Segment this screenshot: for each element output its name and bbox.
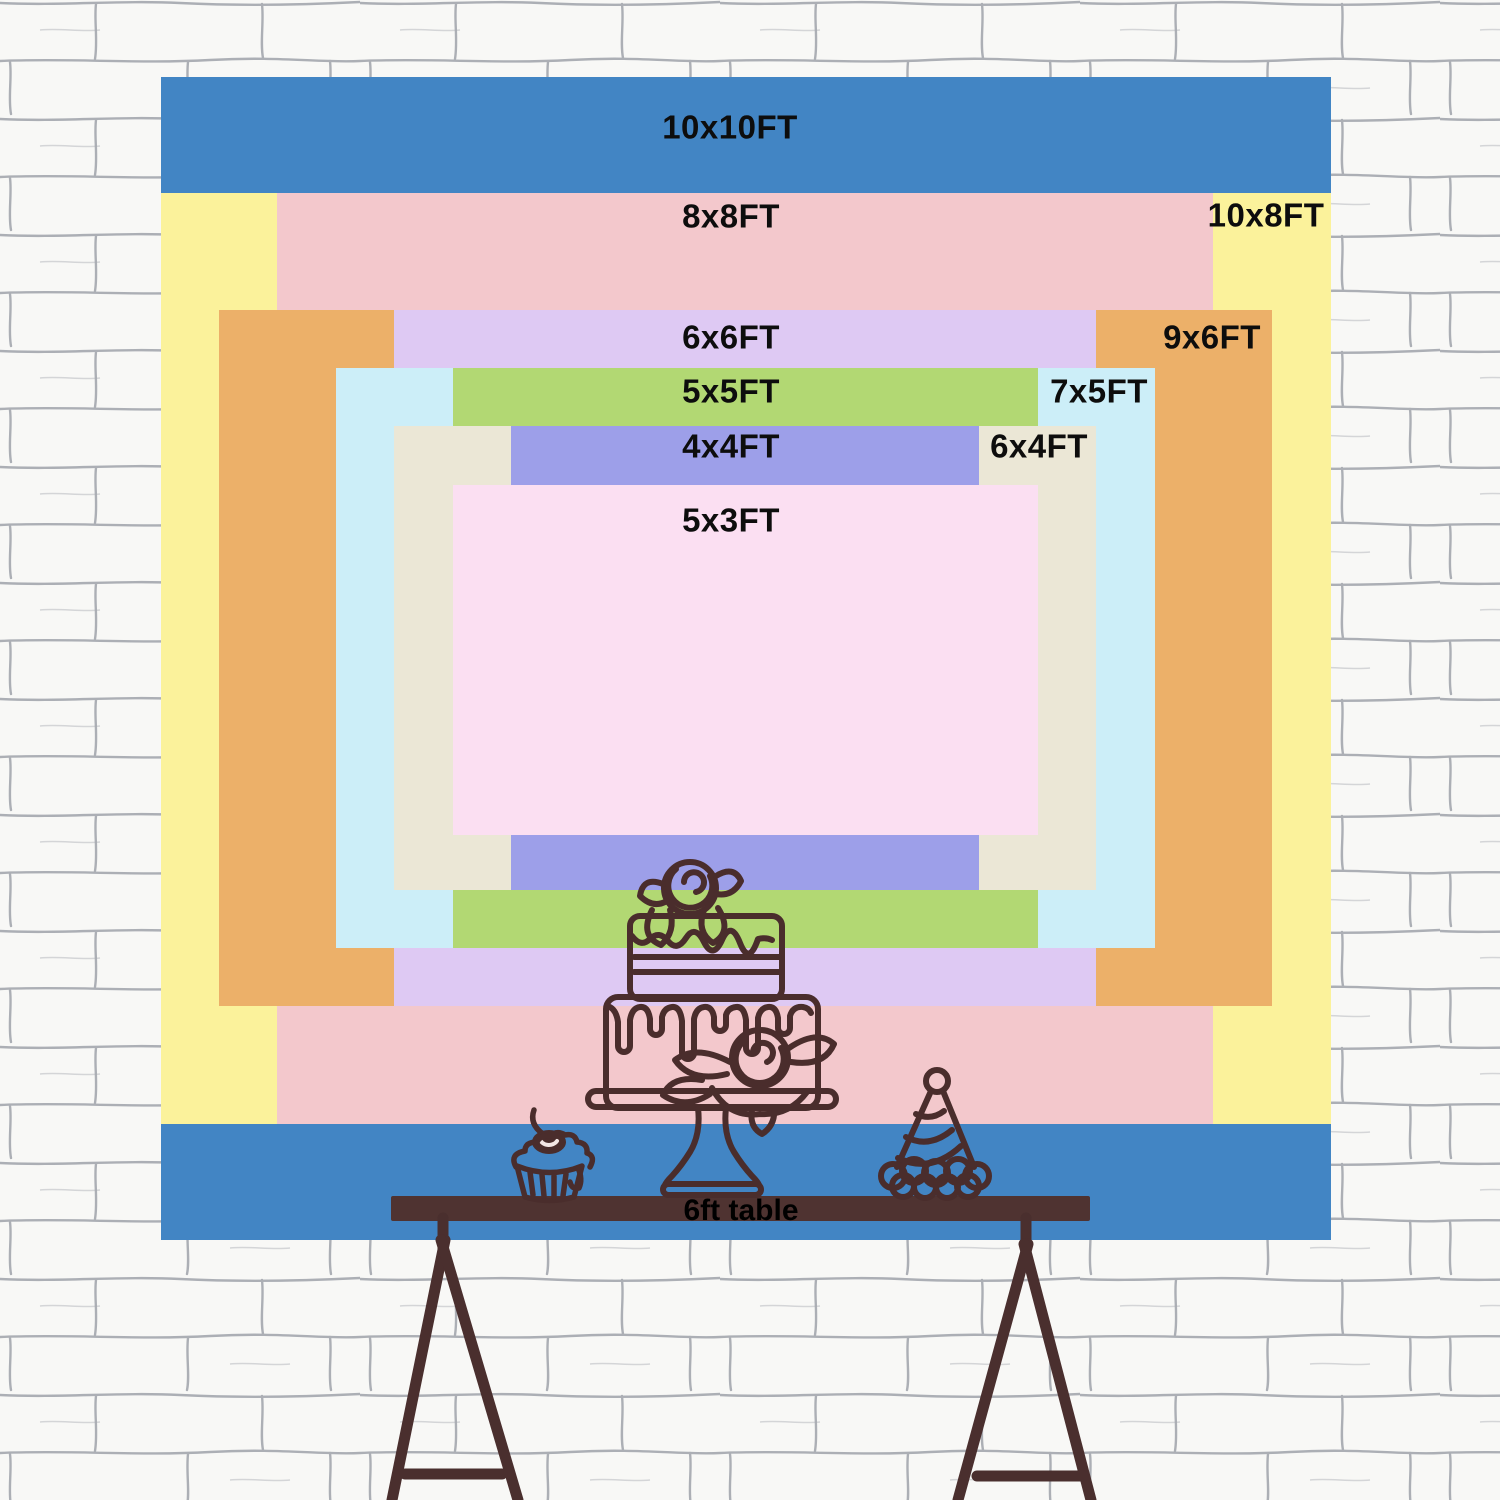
party-hat-icon <box>881 1070 989 1198</box>
cupcake-icon <box>514 1110 593 1201</box>
backdrop-size-chart-page: 10x10FT10x8FT8x8FT9x6FT6x6FT7x5FT5x5FT6x… <box>0 0 1500 1500</box>
tiered-cake-icon <box>588 862 836 1195</box>
trestle-legs-icon <box>392 1218 1091 1500</box>
decorations-overlay <box>0 0 1500 1500</box>
